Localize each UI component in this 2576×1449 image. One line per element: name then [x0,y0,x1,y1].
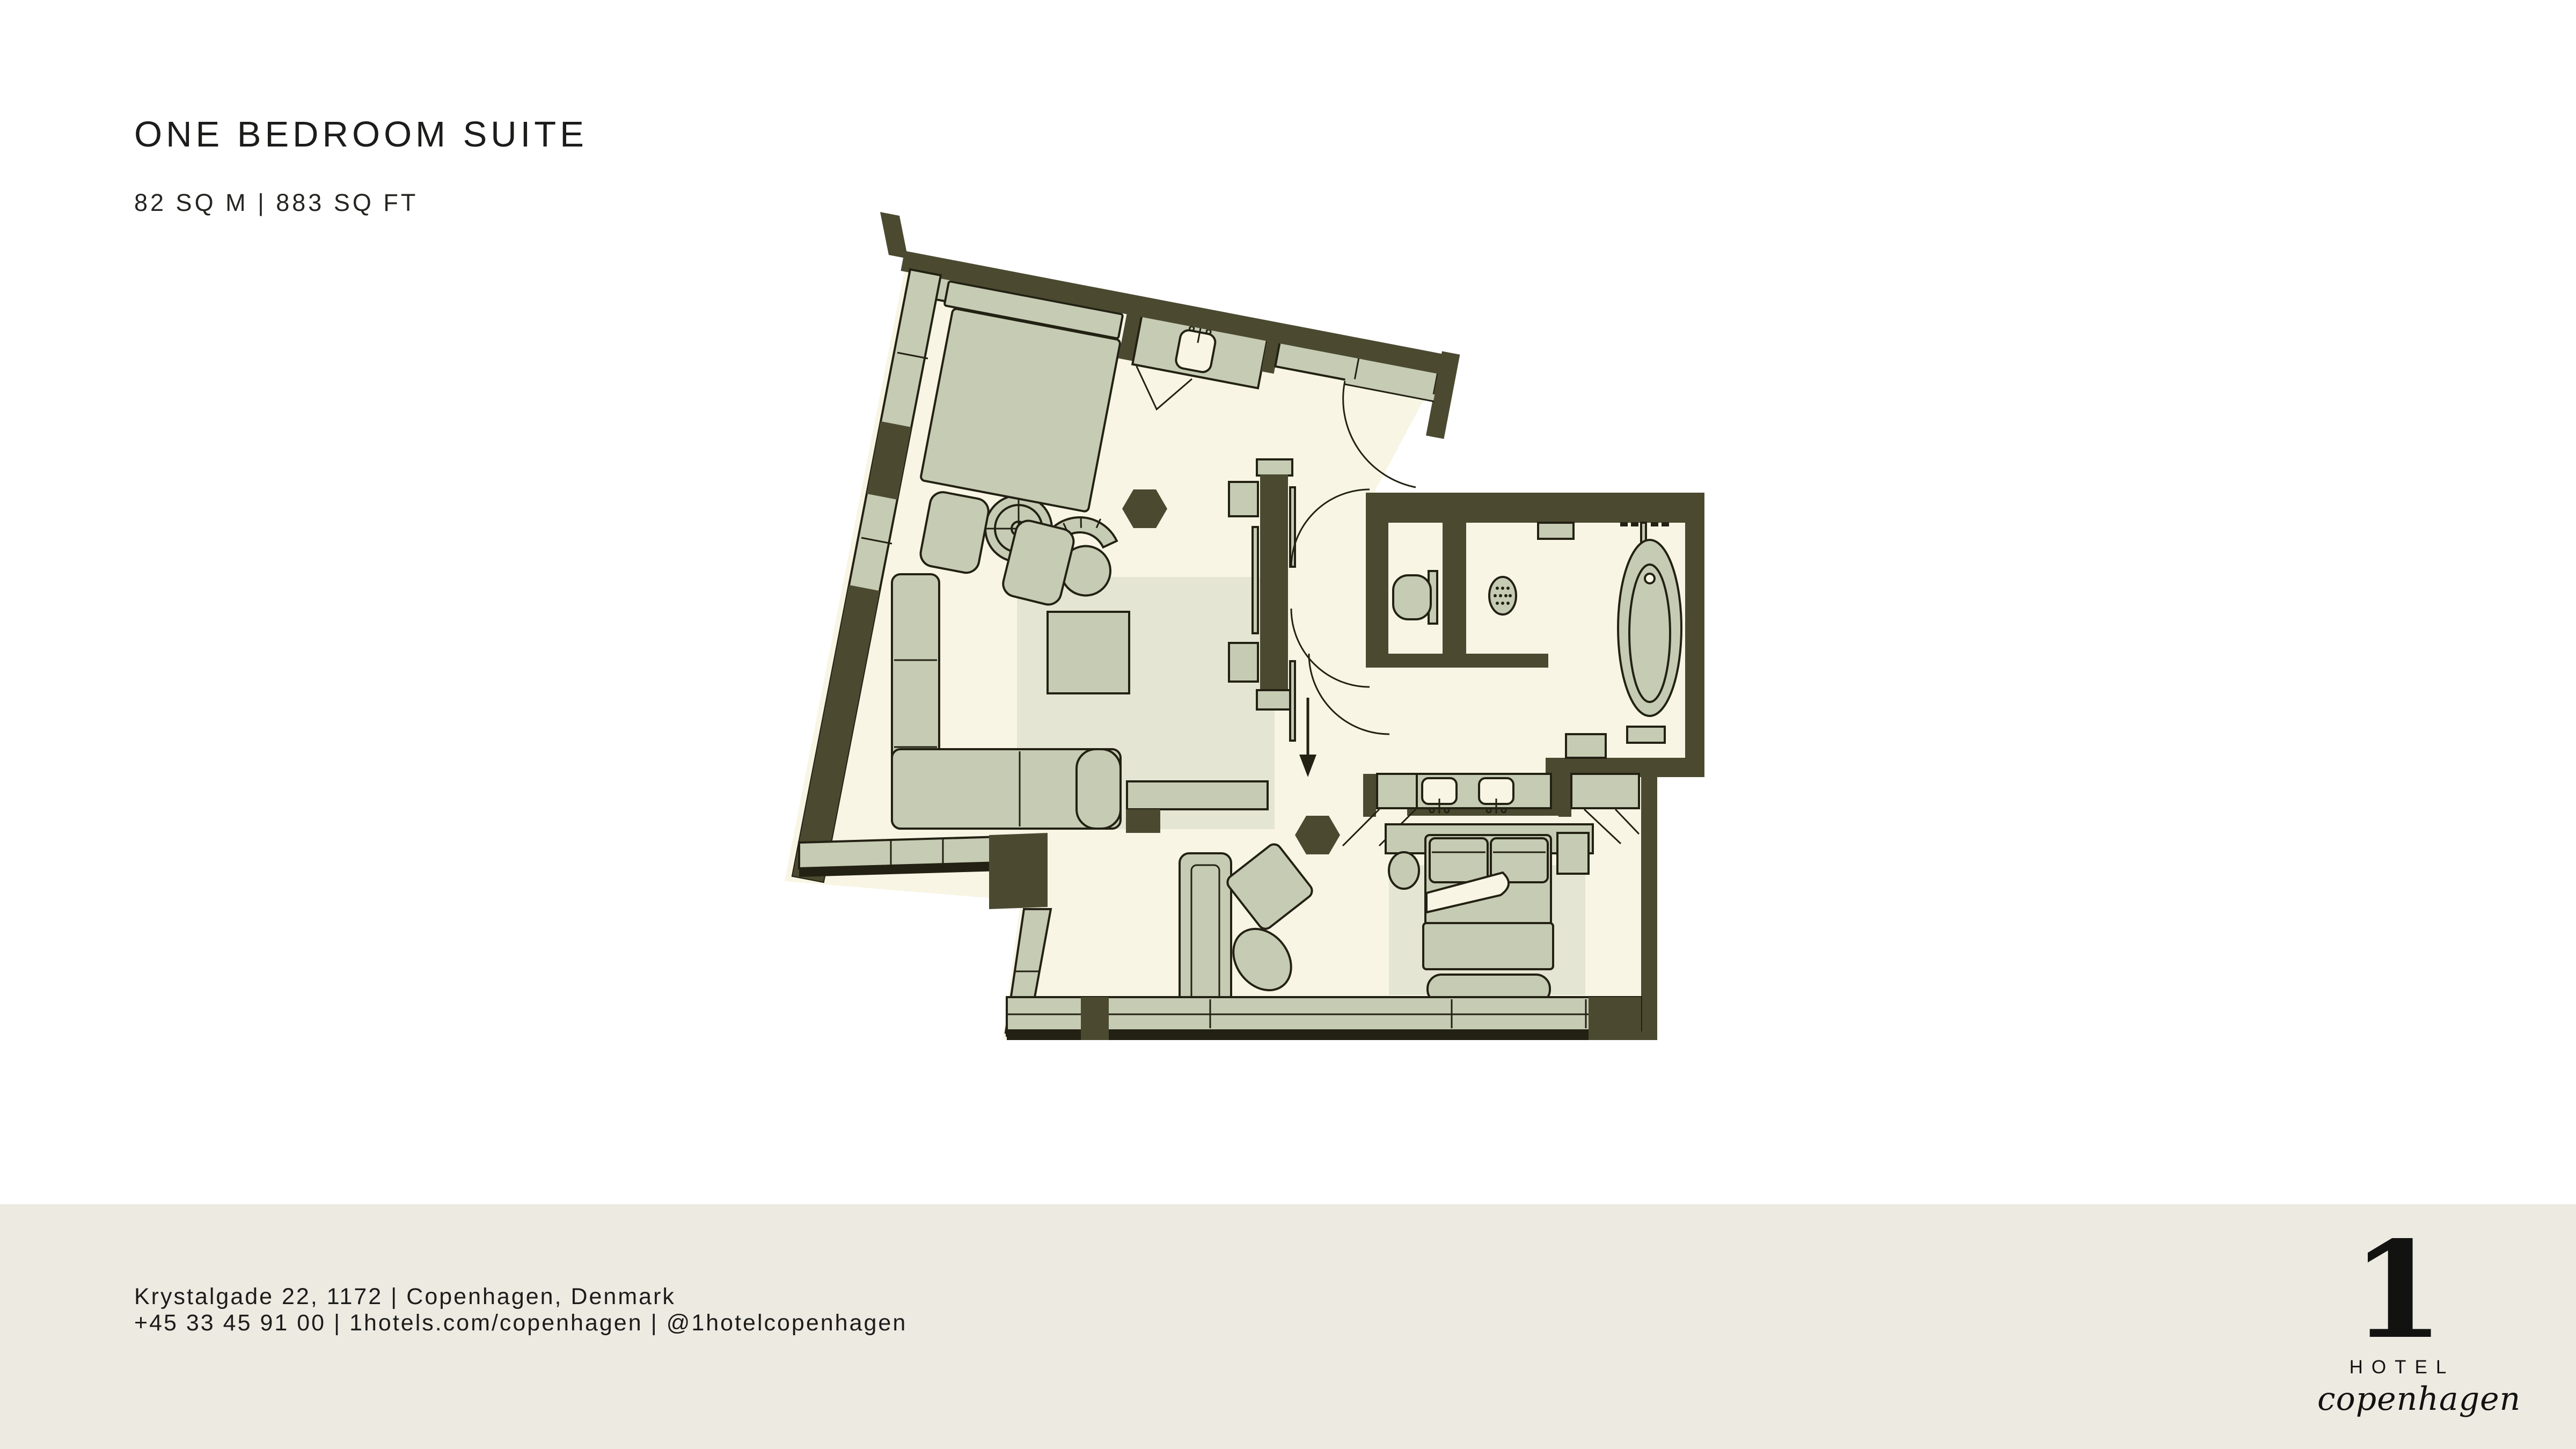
sliding-door [1290,661,1295,741]
wall-elbow [989,833,1048,909]
duvet [1423,923,1553,969]
nightstand-round [1389,852,1419,889]
bedroom-right-wall [1641,775,1657,1040]
toilet [1393,571,1437,624]
vanity [1407,774,1558,816]
window-pier [1081,997,1109,1040]
nightstand [1557,833,1589,874]
bathroom-top-wall [1366,493,1704,523]
floorplan-page: ONE BEDROOM SUITE 82 SQ M | 883 SQ FT [0,0,2576,1449]
hotel-logo: 1 HOTEL copenhagen [2317,1232,2478,1418]
wardrobe-wall [1260,474,1288,690]
logo-numeral: 1 [2317,1232,2478,1349]
bath-shelf [1538,523,1574,539]
pouf [918,490,990,575]
bathtub [1618,540,1681,716]
bathroom-right-wall [1685,493,1704,777]
tv-panel [1253,527,1258,633]
bathroom-left-wall [1366,493,1388,654]
logo-city-script: copenhagen [2317,1380,2478,1418]
window-pier [1589,997,1641,1040]
bath-bench [1566,734,1606,758]
pillow [1430,838,1488,882]
shower-partition [1443,523,1466,668]
bath-mat [1627,727,1665,743]
closet [1571,774,1639,808]
kitchen-sink [1175,329,1217,374]
footer-address: Krystalgade 22, 1172 | Copenhagen, Denma… [134,1284,907,1310]
coffee-table [1048,612,1129,693]
daybed [920,308,1121,512]
closet [1377,774,1417,808]
logo-hotel-word: HOTEL [2317,1357,2478,1378]
console-table [1127,781,1268,809]
footer-text: Krystalgade 22, 1172 | Copenhagen, Denma… [134,1284,907,1336]
shower-drain [1489,577,1516,614]
facade-fin [880,212,908,259]
bed [1423,835,1553,1004]
footer-contact: +45 33 45 91 00 | 1hotels.com/copenhagen… [134,1310,907,1336]
